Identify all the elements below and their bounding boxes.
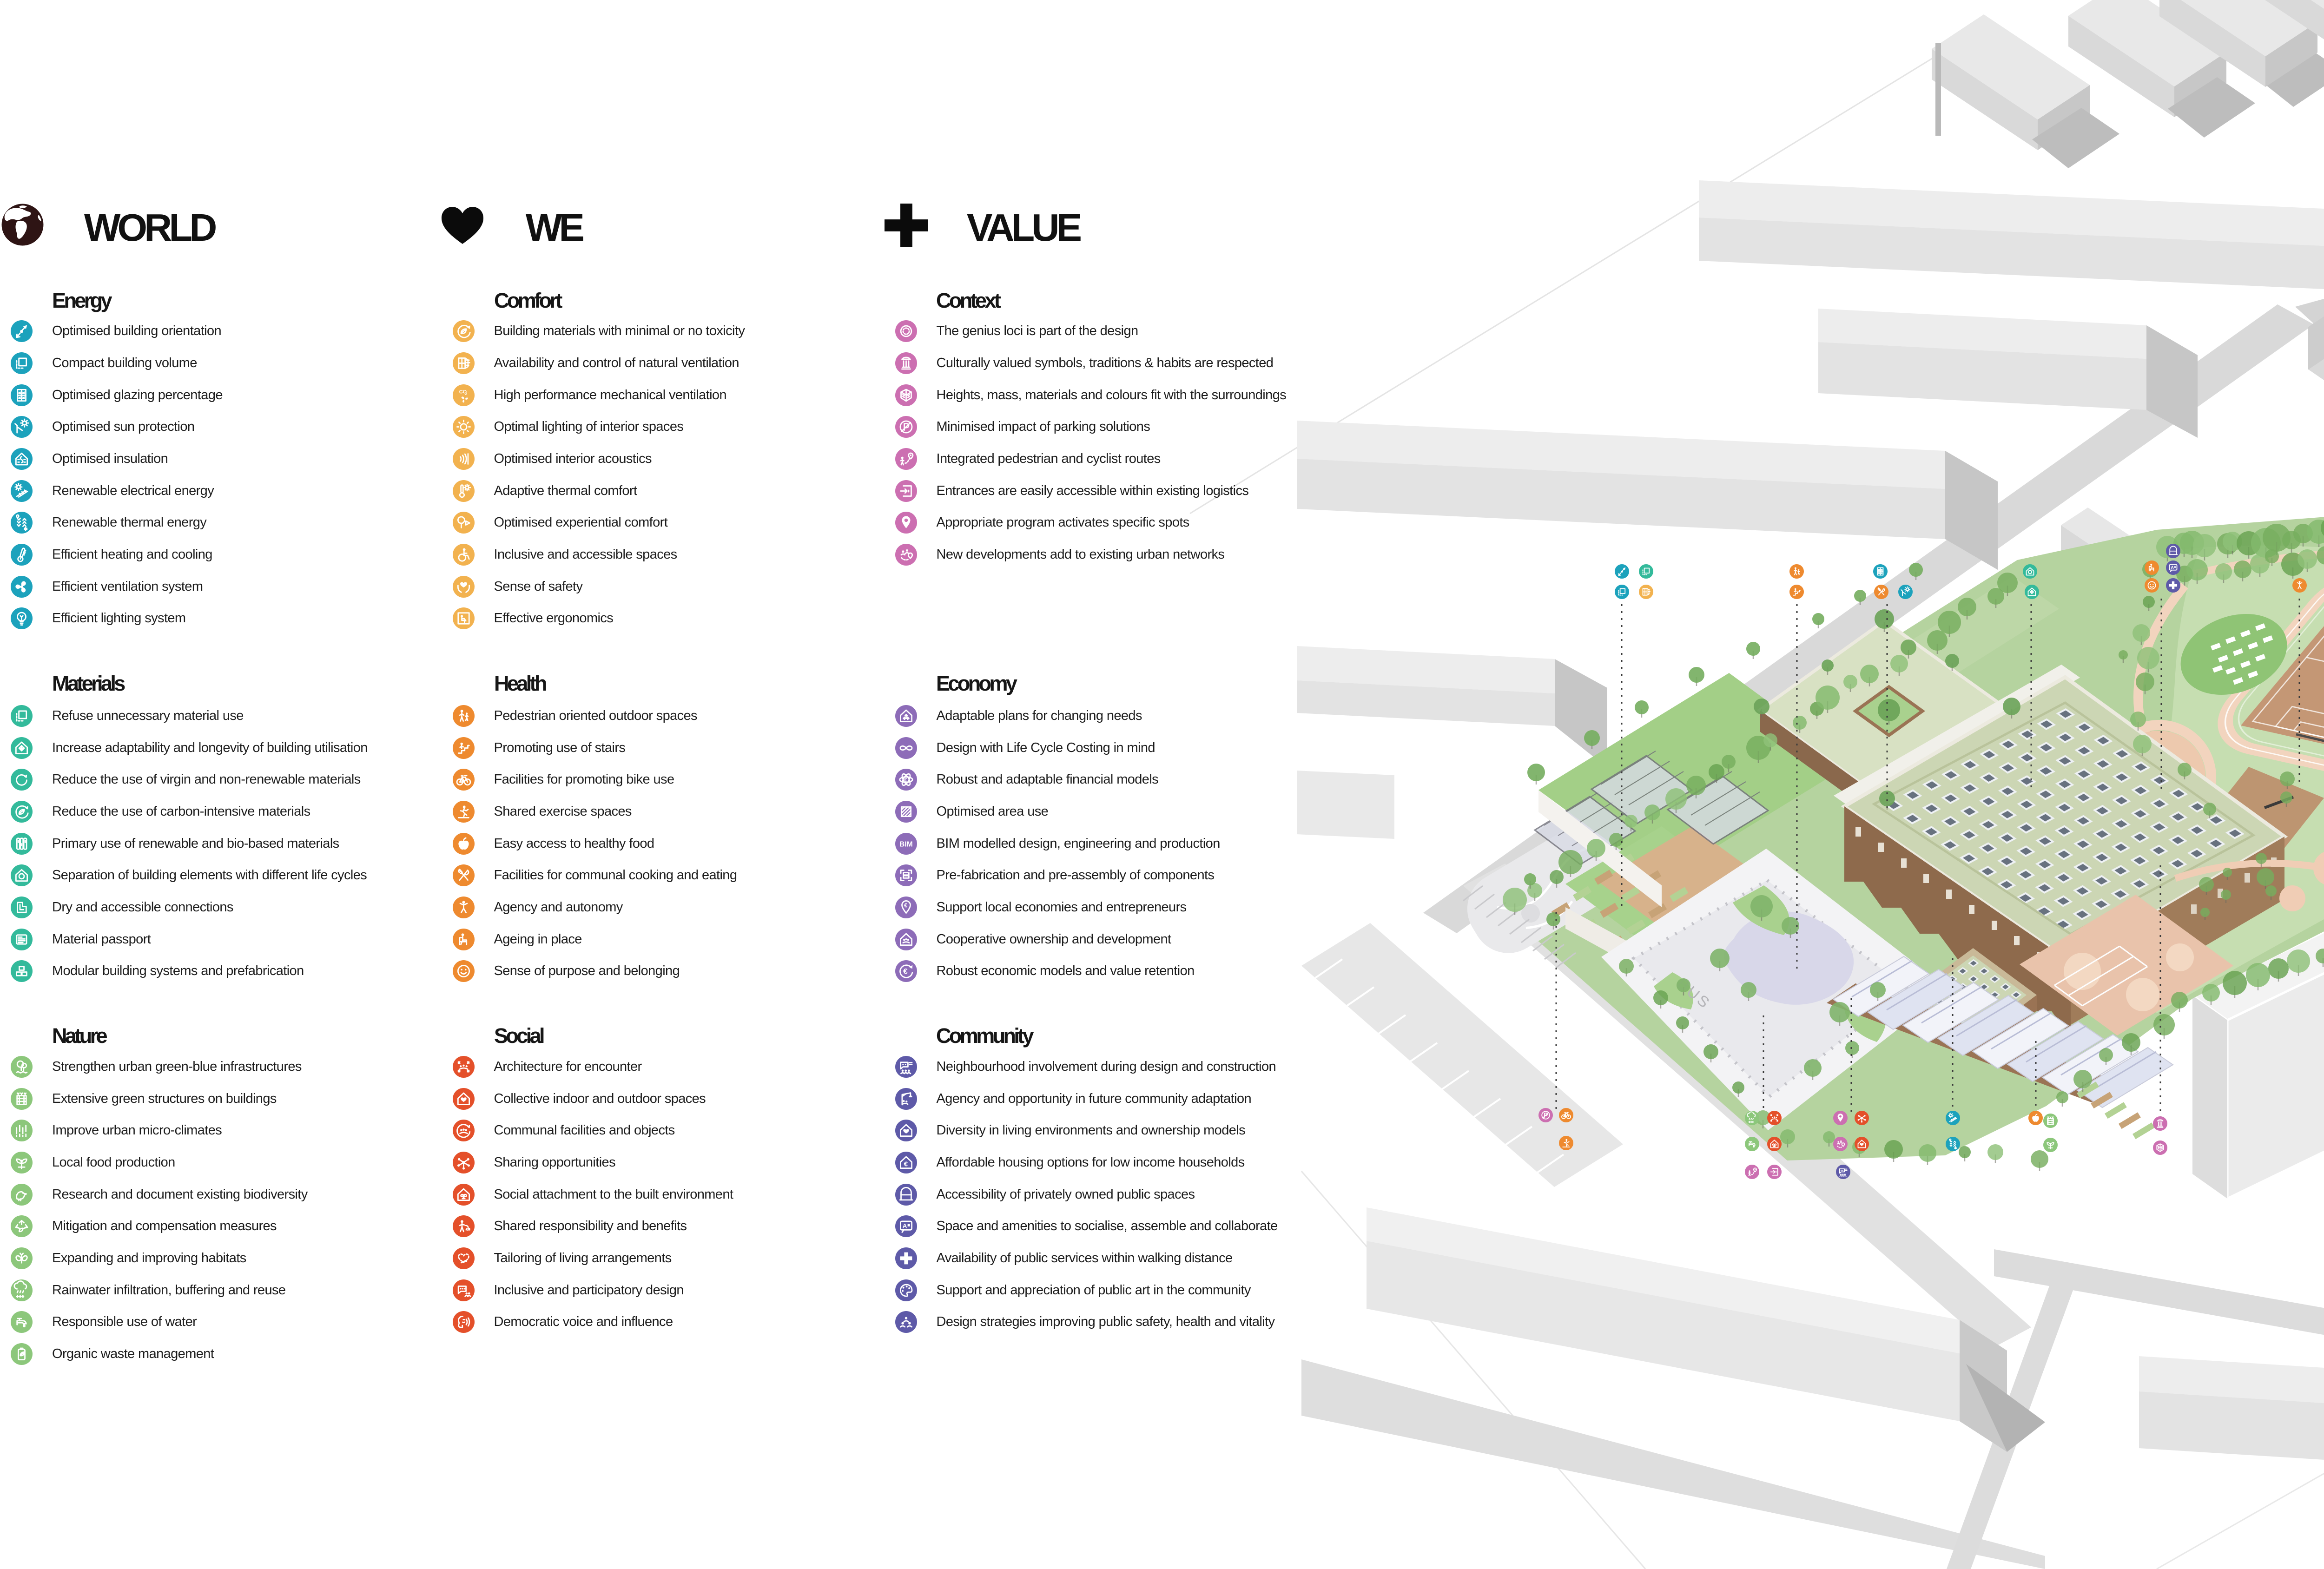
svg-text:A: A [2171,565,2174,570]
svg-text:BIM: BIM [899,840,913,848]
svg-text:€: € [903,967,908,976]
svg-text:€: € [904,1160,908,1168]
svg-text:€: € [904,777,907,783]
svg-text:2: 2 [465,392,467,396]
svg-text:A: A [902,1223,907,1230]
svg-text:€: € [904,902,907,909]
